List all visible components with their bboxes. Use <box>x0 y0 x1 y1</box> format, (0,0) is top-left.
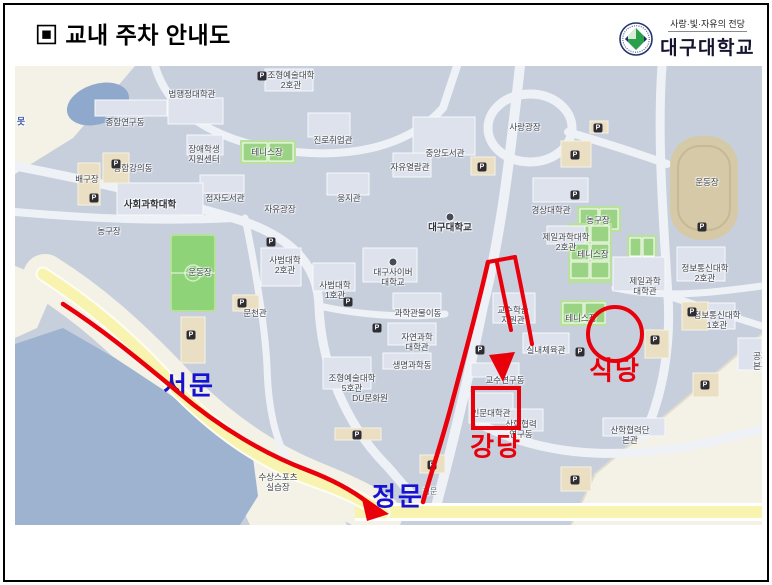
west-gate-route-line <box>63 304 367 502</box>
slide: ▣ 교내 주차 안내도 사랑·빛·자유의 전당 대구대학교 <box>3 3 769 582</box>
main-gate-arrowhead <box>361 495 389 521</box>
university-seal-icon <box>618 21 654 57</box>
logo-tagline: 사랑·빛·자유의 전당 <box>668 17 747 32</box>
route-overlay <box>15 66 762 525</box>
auditorium-arrow-right-stroke <box>515 257 532 344</box>
auditorium-arrowhead <box>489 352 515 382</box>
campus-map: 종합연구동법행정대학관장애학생 지원센터종합강의동배구장사회과학대학점자도서관농… <box>15 66 762 525</box>
auditorium-arrow-left-stroke <box>497 263 511 330</box>
page-title: ▣ 교내 주차 안내도 <box>35 16 231 50</box>
cafeteria-circle <box>588 307 642 361</box>
university-logo: 사랑·빛·자유의 전당 대구대학교 <box>618 17 755 60</box>
auditorium-box <box>473 388 519 428</box>
route-top-connector <box>488 257 515 262</box>
logo-university-name: 대구대학교 <box>660 33 755 60</box>
main-road-route-line <box>423 262 488 502</box>
